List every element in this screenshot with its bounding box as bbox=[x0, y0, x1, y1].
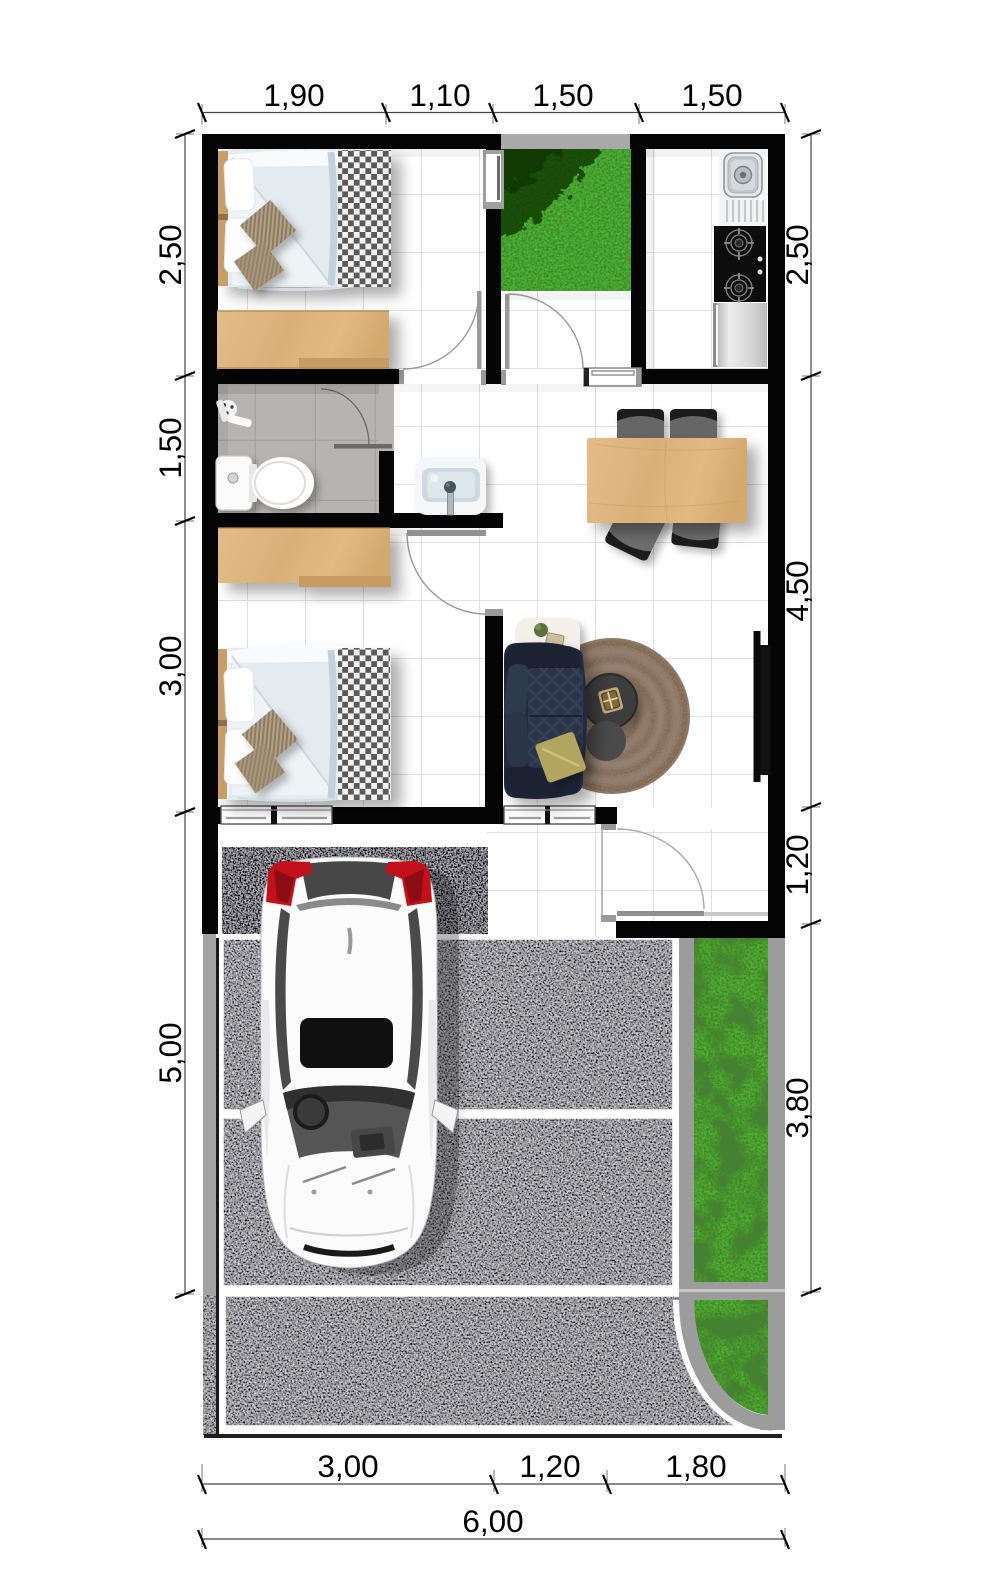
svg-text:1,50: 1,50 bbox=[681, 77, 742, 113]
svg-text:3,80: 3,80 bbox=[779, 1077, 815, 1138]
svg-text:6,00: 6,00 bbox=[462, 1503, 523, 1539]
svg-text:1,20: 1,20 bbox=[519, 1448, 580, 1484]
svg-text:1,80: 1,80 bbox=[665, 1448, 726, 1484]
svg-text:2,50: 2,50 bbox=[779, 224, 815, 285]
svg-text:1,50: 1,50 bbox=[532, 77, 593, 113]
svg-text:4,50: 4,50 bbox=[779, 560, 815, 621]
svg-text:1,50: 1,50 bbox=[152, 417, 188, 478]
svg-text:1,10: 1,10 bbox=[409, 77, 470, 113]
svg-text:2,50: 2,50 bbox=[152, 224, 188, 285]
svg-text:1,20: 1,20 bbox=[779, 834, 815, 895]
svg-text:3,00: 3,00 bbox=[317, 1448, 378, 1484]
svg-text:3,00: 3,00 bbox=[152, 635, 188, 696]
svg-text:5,00: 5,00 bbox=[152, 1022, 188, 1083]
svg-text:1,90: 1,90 bbox=[263, 77, 324, 113]
